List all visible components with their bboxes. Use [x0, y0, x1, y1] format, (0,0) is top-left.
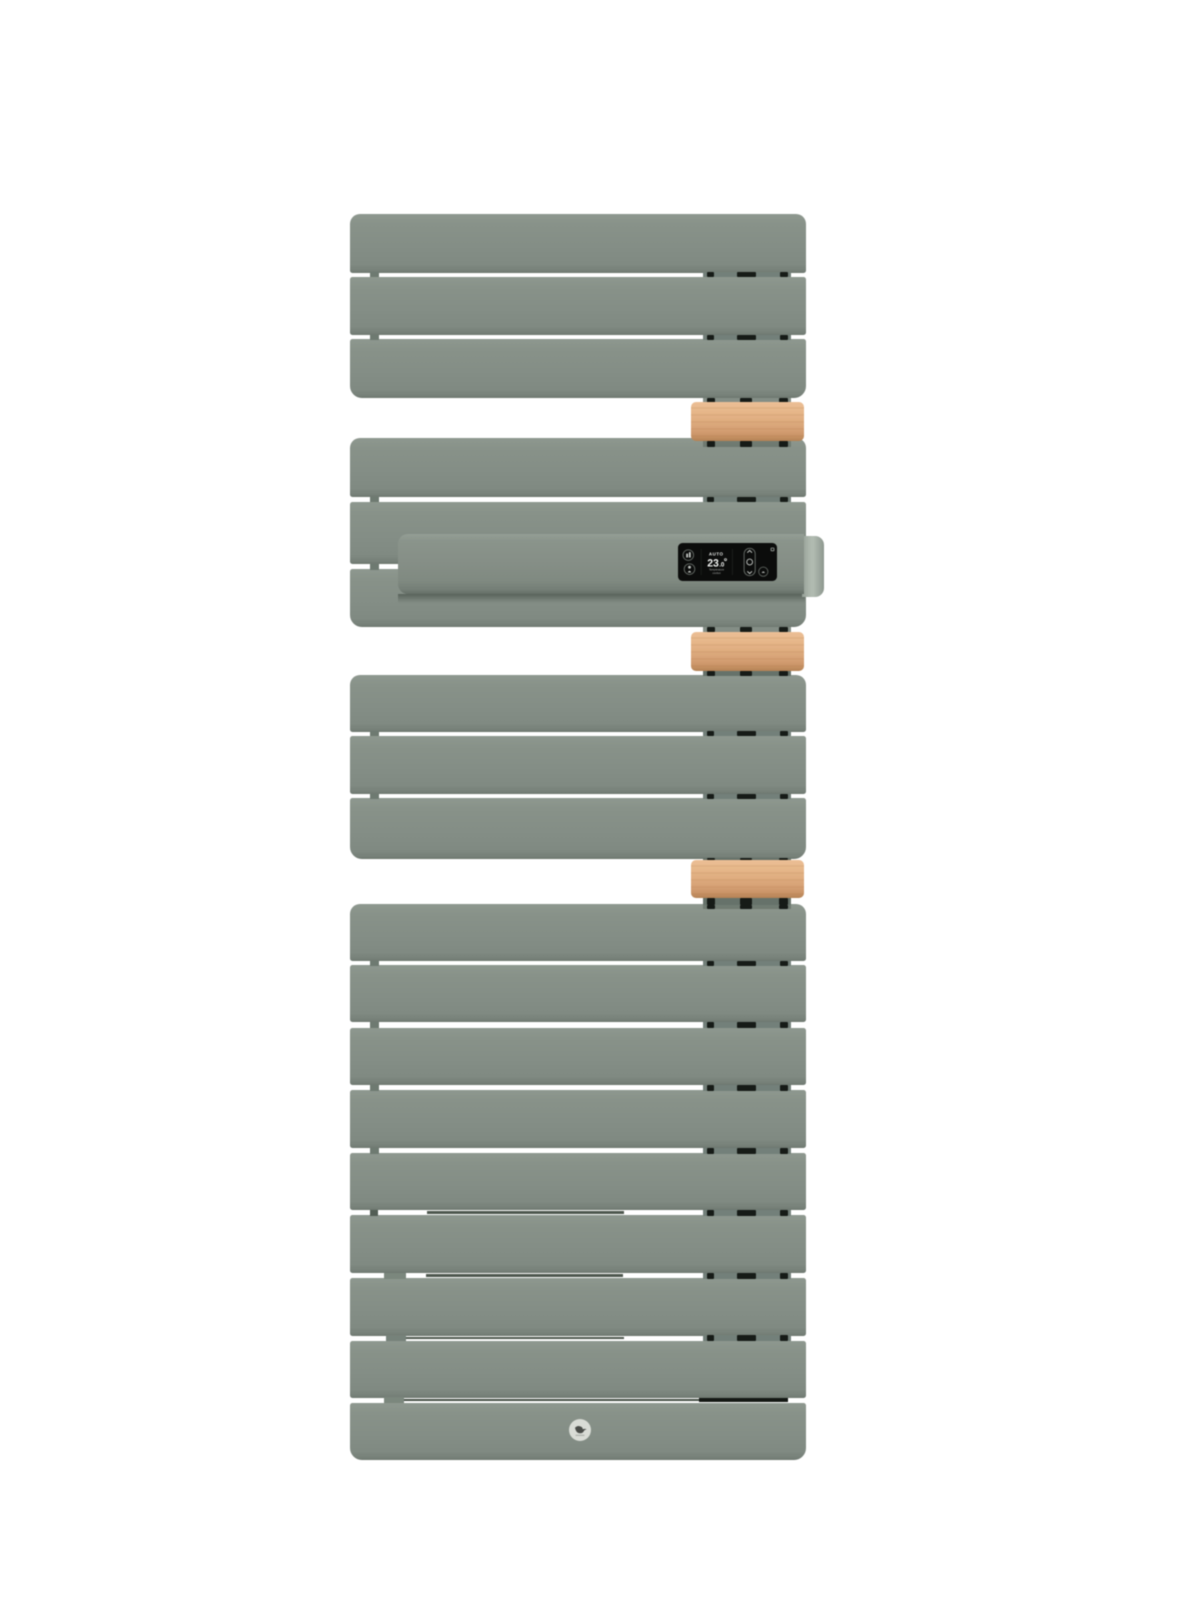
svg-text:AUTO: AUTO — [708, 552, 723, 557]
svg-text:confort: confort — [712, 572, 720, 575]
svg-text:.0: .0 — [719, 562, 725, 569]
